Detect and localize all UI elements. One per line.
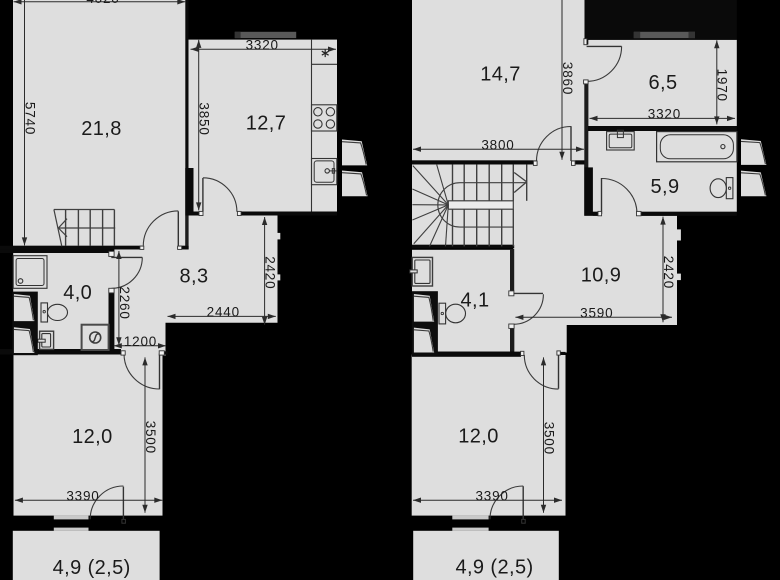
svg-text:3390: 3390 bbox=[475, 489, 508, 504]
svg-text:3500: 3500 bbox=[143, 421, 158, 454]
svg-text:5,9: 5,9 bbox=[650, 176, 679, 198]
svg-text:8,3: 8,3 bbox=[179, 266, 208, 288]
svg-text:3320: 3320 bbox=[246, 38, 279, 53]
svg-text:3500: 3500 bbox=[541, 422, 556, 455]
svg-text:2420: 2420 bbox=[262, 256, 277, 289]
svg-text:3390: 3390 bbox=[66, 489, 99, 504]
svg-text:2260: 2260 bbox=[117, 286, 132, 319]
svg-text:14,7: 14,7 bbox=[480, 63, 521, 85]
svg-text:1970: 1970 bbox=[715, 69, 730, 102]
svg-text:3850: 3850 bbox=[197, 102, 212, 135]
svg-text:4,9 (2,5): 4,9 (2,5) bbox=[53, 557, 131, 579]
svg-text:3860: 3860 bbox=[560, 62, 575, 95]
svg-text:21,8: 21,8 bbox=[81, 118, 122, 140]
svg-text:6,5: 6,5 bbox=[648, 72, 677, 94]
svg-text:3800: 3800 bbox=[481, 138, 514, 153]
svg-text:10,9: 10,9 bbox=[581, 265, 622, 287]
svg-text:4020: 4020 bbox=[86, 0, 119, 6]
svg-text:5740: 5740 bbox=[22, 102, 37, 135]
svg-text:4,9 (2,5): 4,9 (2,5) bbox=[455, 557, 533, 579]
svg-text:4,1: 4,1 bbox=[460, 290, 489, 312]
svg-text:12,0: 12,0 bbox=[72, 426, 113, 448]
svg-text:1200: 1200 bbox=[124, 334, 157, 349]
svg-text:4,0: 4,0 bbox=[63, 282, 92, 304]
svg-text:3320: 3320 bbox=[648, 107, 681, 122]
svg-text:12,7: 12,7 bbox=[246, 113, 287, 135]
svg-text:2440: 2440 bbox=[207, 305, 240, 320]
svg-text:2420: 2420 bbox=[661, 256, 676, 289]
svg-text:3590: 3590 bbox=[580, 306, 613, 321]
svg-text:12,0: 12,0 bbox=[458, 426, 499, 448]
